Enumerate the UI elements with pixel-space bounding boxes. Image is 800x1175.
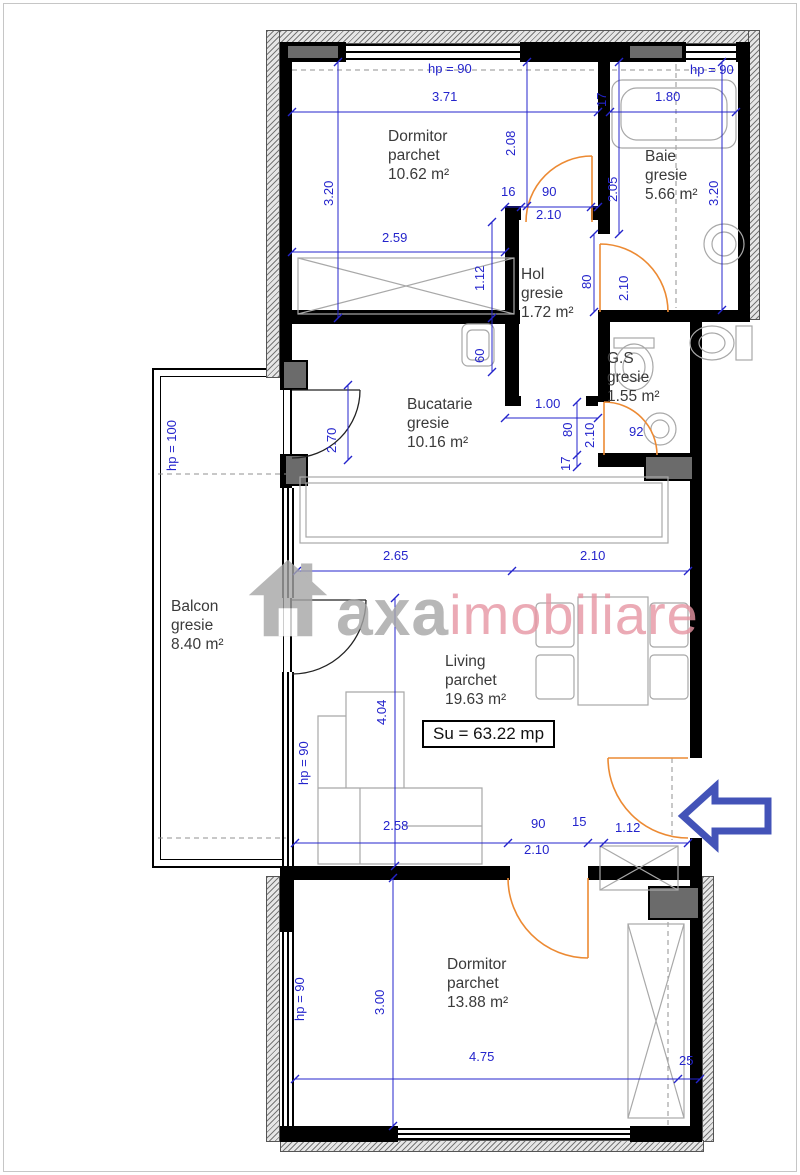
dim-entry_width: 1.12 — [615, 821, 640, 834]
dim-gs_width: 92 — [629, 425, 643, 438]
gs-sink — [644, 413, 676, 445]
bath-toilet — [690, 326, 734, 360]
room-floor: parchet — [447, 975, 508, 994]
room-area: 5.66 m² — [645, 186, 698, 205]
room-floor: gresie — [171, 617, 224, 636]
dim-hp_top_left: hp = 90 — [428, 62, 472, 75]
bath-sink — [704, 224, 744, 264]
dim-hol_door_width: 90 — [542, 185, 556, 198]
room-floor: parchet — [445, 672, 506, 691]
room-area: 10.16 m² — [407, 434, 472, 453]
room-name: Dormitor — [388, 128, 449, 147]
dim-baie_right: 3.20 — [707, 181, 720, 206]
dim-living_width_right: 2.10 — [580, 549, 605, 562]
dim-top_left_width: 3.71 — [432, 90, 457, 103]
dim-entry_door_height: 2.10 — [524, 843, 549, 856]
dim-dormitor2_depth: 3.00 — [373, 990, 386, 1015]
dim-hp_balcony: hp = 100 — [165, 420, 178, 471]
dim-gs_door_height: 2.10 — [583, 423, 596, 448]
dim-entry_jamb: 15 — [572, 815, 586, 828]
room-floor: gresie — [407, 415, 472, 434]
room-label-6: Livingparchet19.63 m² — [445, 653, 506, 710]
dim-wall_17: 17 — [595, 93, 608, 107]
room-name: Living — [445, 653, 506, 672]
dim-entry_door_width: 90 — [531, 817, 545, 830]
floor-plan: Su = 63.22 mp axa imobiliare hp = 903.71… — [0, 0, 800, 1175]
room-area: 8.40 m² — [171, 636, 224, 655]
room-area: 10.62 m² — [388, 166, 449, 185]
kitchen-counter-inner — [306, 483, 662, 537]
room-label-0: Dormitorparchet10.62 m² — [388, 128, 449, 185]
bath-toilet-tank — [736, 326, 752, 360]
room-label-1: Baiegresie5.66 m² — [645, 148, 698, 205]
dim-hol_niche: 60 — [473, 349, 486, 363]
dashed-reference-lines — [158, 64, 734, 1126]
room-name: Bucatarie — [407, 396, 472, 415]
dim-hp_top_right: hp = 90 — [690, 63, 734, 76]
room-floor: gresie — [645, 167, 698, 186]
sofa — [318, 692, 482, 864]
total-area-box: Su = 63.22 mp — [422, 720, 555, 748]
room-name: Baie — [645, 148, 698, 167]
dim-living_width_left: 2.65 — [383, 549, 408, 562]
room-area: 1.55 m² — [607, 388, 660, 407]
gs-toilet-tank — [614, 338, 654, 348]
dining-table — [578, 597, 648, 705]
dimension-lines — [292, 62, 736, 1126]
bath-toilet-bowl — [699, 333, 725, 353]
wardrobe-tall-cross — [628, 924, 684, 1118]
dim-baie_left: 2.05 — [606, 177, 619, 202]
chair — [650, 655, 688, 699]
dim-living_depth: 4.04 — [375, 700, 388, 725]
dim-wardrobe_depth: 1.12 — [473, 266, 486, 291]
room-name: G.S — [607, 350, 660, 369]
dim-hp_bottom: hp = 90 — [293, 977, 306, 1021]
room-label-7: Dormitorparchet13.88 m² — [447, 956, 508, 1013]
room-floor: parchet — [388, 147, 449, 166]
chair — [536, 655, 574, 699]
dim-sofa_width: 2.58 — [383, 819, 408, 832]
room-area: 1.72 m² — [521, 304, 574, 323]
chair — [536, 603, 574, 647]
dim-baie_door_height: 2.10 — [617, 276, 630, 301]
room-name: Balcon — [171, 598, 224, 617]
dim-dormitor1_depth_right: 2.08 — [504, 131, 517, 156]
room-floor: gresie — [607, 369, 660, 388]
room-area: 13.88 m² — [447, 994, 508, 1013]
dim-hol_jamb: 16 — [501, 185, 515, 198]
bath-sink-bowl — [712, 232, 736, 256]
room-name: Dormitor — [447, 956, 508, 975]
fixtures — [298, 80, 752, 1118]
dim-dormitor1_width_lower: 2.59 — [382, 231, 407, 244]
dimension-ticks — [288, 58, 740, 1130]
dim-wall_25: 25 — [679, 1054, 693, 1067]
dim-hp_living: hp = 90 — [297, 741, 310, 785]
dim-baie_door_width: 80 — [580, 275, 593, 289]
dim-hol_door_height: 2.10 — [536, 208, 561, 221]
dim-dormitor2_width: 4.75 — [469, 1050, 494, 1063]
dim-gs_door_width: 80 — [561, 423, 574, 437]
entrance-arrow-icon — [683, 787, 768, 845]
dim-kitchen_door_height: 2.70 — [325, 428, 338, 453]
dim-top_right_width: 1.80 — [655, 90, 680, 103]
dim-hol_opening: 1.00 — [535, 397, 560, 410]
room-floor: gresie — [521, 285, 574, 304]
room-label-5: Balcongresie8.40 m² — [171, 598, 224, 655]
kitchen-counter — [300, 477, 668, 543]
entry-closet-cross — [600, 846, 678, 890]
dim-dormitor1_depth_left: 3.20 — [322, 181, 335, 206]
room-label-2: Holgresie1.72 m² — [521, 266, 574, 323]
chair — [650, 603, 688, 647]
room-label-4: Bucatariegresie10.16 m² — [407, 396, 472, 453]
room-area: 19.63 m² — [445, 691, 506, 710]
room-name: Hol — [521, 266, 574, 285]
room-label-3: G.Sgresie1.55 m² — [607, 350, 660, 407]
dim-gs_wall: 17 — [559, 457, 572, 471]
